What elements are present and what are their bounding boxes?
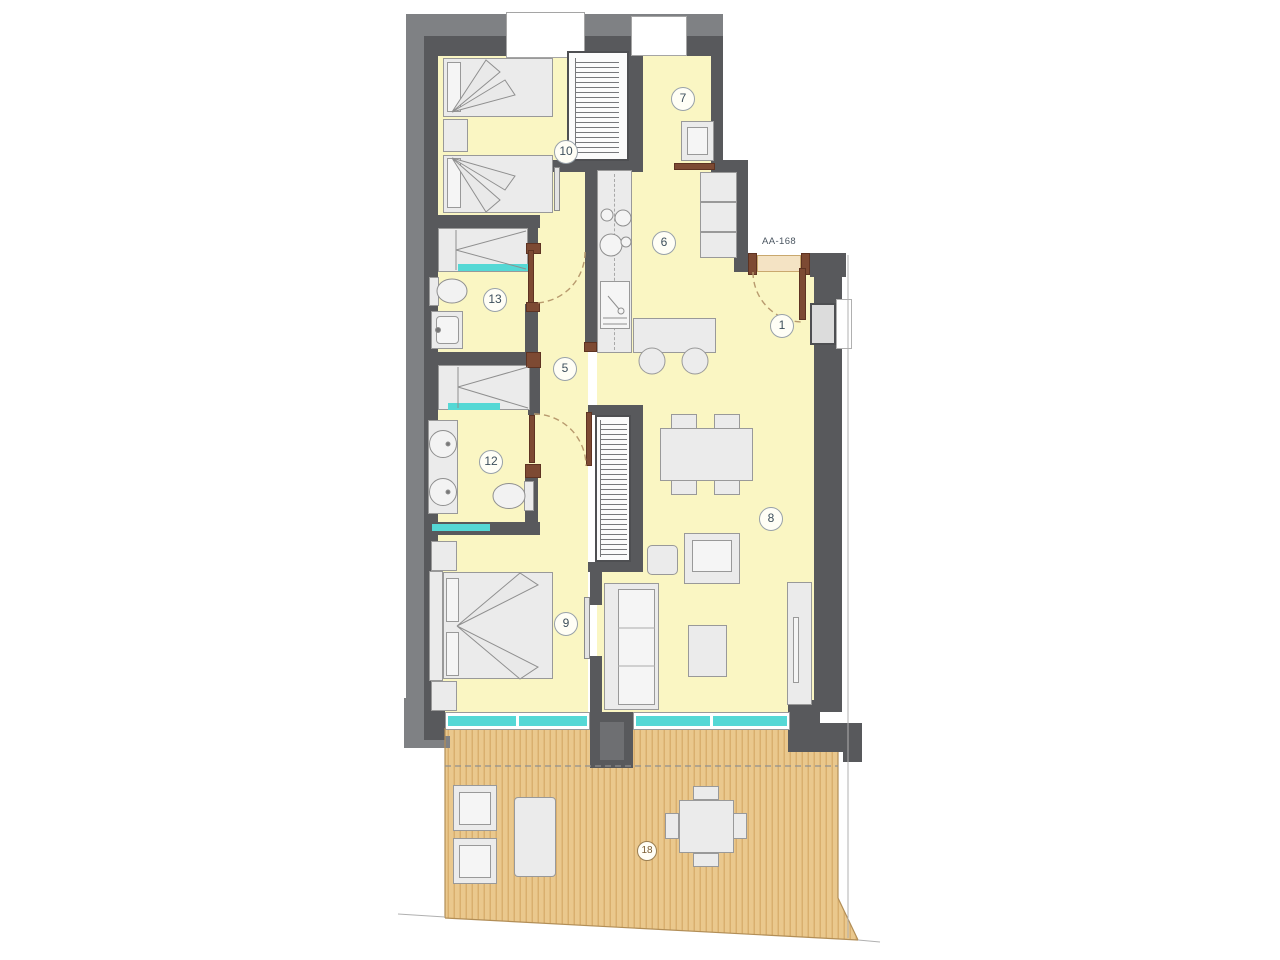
tv-sideboard-slot xyxy=(793,617,799,683)
terrace-lounger xyxy=(514,797,556,877)
entry-door-frame-left xyxy=(748,253,757,275)
room-label-hallway: 5 xyxy=(553,357,577,381)
terrace-chair-south xyxy=(693,853,719,867)
wardrobe-hall-sliding-door xyxy=(586,412,592,466)
double-bed-pillow-1 xyxy=(446,578,459,622)
double-bed-pillow-2 xyxy=(446,632,459,676)
room-label-living-dining: 8 xyxy=(759,507,783,531)
utility-niche xyxy=(836,299,852,349)
bath13-door-leaf xyxy=(528,250,534,306)
entry-door-reference: AA-168 xyxy=(762,236,796,247)
vanity-12 xyxy=(428,420,458,514)
wardrobe-hall-hangers xyxy=(600,420,627,557)
window-bedroom-terrace xyxy=(445,712,590,730)
toilet-12-cistern xyxy=(524,481,534,511)
kitchen-tall-cabinet-1 xyxy=(700,172,737,202)
nightstand-9-bottom xyxy=(431,681,457,711)
dining-chair-bottom-2 xyxy=(714,480,740,495)
nightstand-10 xyxy=(443,119,468,152)
dining-chair-top-2 xyxy=(714,414,740,429)
sofa-cushions xyxy=(618,589,655,705)
terrace-chair-west xyxy=(665,813,679,839)
wall-bath13-bath12 xyxy=(424,352,540,365)
single-bed-1-pillow xyxy=(447,62,461,112)
wall-bed9-living-bottom xyxy=(590,656,602,712)
wall-bed9-living-top xyxy=(590,572,602,605)
room-label-bedroom-twin: 10 xyxy=(554,140,578,164)
bath12-door-hinge-bottom xyxy=(525,464,541,478)
terrace-deck xyxy=(437,728,858,940)
wall-kitchen-west xyxy=(585,160,597,352)
utility-sliding-track xyxy=(674,163,715,170)
terrace-chair-2-seat xyxy=(459,845,491,878)
washing-machine-inner xyxy=(687,127,708,155)
room-label-bathroom-bottom: 12 xyxy=(479,450,503,474)
room-label-kitchen: 6 xyxy=(652,231,676,255)
wall-bottom-right-block xyxy=(788,700,820,752)
terrace-chair-east xyxy=(733,813,747,839)
room-label-terrace: 18 xyxy=(637,841,657,861)
armchair-seat xyxy=(692,540,732,572)
utility-meter-box xyxy=(810,303,836,345)
room-label-bathroom-top: 13 xyxy=(483,288,507,312)
kitchen-tall-cabinet-2 xyxy=(700,202,737,232)
dining-chair-bottom-1 xyxy=(671,480,697,495)
nightstand-9-top xyxy=(431,541,457,571)
wall-closet1-east xyxy=(629,48,643,166)
entry-door-opening xyxy=(757,255,801,272)
kitchen-wall-end xyxy=(584,342,597,352)
dining-table xyxy=(660,428,753,481)
terrace-pillar-inner xyxy=(600,722,624,760)
window-divider xyxy=(710,715,713,727)
washbasin-13-bowl xyxy=(436,316,459,344)
wall-bottom-right-step xyxy=(843,745,862,762)
terrace-chair-1-seat xyxy=(459,792,491,825)
wall-entry-block-right xyxy=(810,253,846,277)
window-living-terrace xyxy=(633,712,790,730)
single-bed-2-pillow xyxy=(447,158,461,208)
bedroom10-sliding-leaf xyxy=(554,167,560,211)
kitchen-tall-cabinet-3 xyxy=(700,232,737,258)
wall-bedroom10-south xyxy=(424,215,540,228)
bath12-door-leaf xyxy=(529,415,535,463)
bath13-door-stop xyxy=(526,302,540,312)
room-label-entrance-hall: 1 xyxy=(770,314,794,338)
room-label-master-bedroom: 9 xyxy=(554,612,578,636)
kitchen-island xyxy=(633,318,716,353)
wardrobe-top-hangers xyxy=(575,58,619,155)
bath12-wall-glazing xyxy=(432,524,490,531)
bed9-headboard xyxy=(429,571,443,681)
kitchen-sink xyxy=(600,281,630,329)
shower-13-screen xyxy=(458,264,528,271)
toilet-13-cistern xyxy=(429,277,439,306)
bath12-door-hinge-top xyxy=(526,352,541,368)
window-top-utility xyxy=(631,16,687,56)
shower-12-screen xyxy=(448,403,500,410)
apartment-floor-plan: 10 7 6 13 5 1 12 8 9 18 AA-168 xyxy=(0,0,1280,960)
room-label-utility-room: 7 xyxy=(671,87,695,111)
bedroom9-sliding-leaf xyxy=(584,597,590,659)
entry-door-leaf xyxy=(799,268,806,320)
wall-kitchen-east xyxy=(736,167,748,268)
window-divider xyxy=(516,715,519,727)
terrace-table xyxy=(679,800,734,853)
side-table-lamp xyxy=(647,545,678,575)
terrace-chair-north xyxy=(693,786,719,800)
outer-band-left xyxy=(406,14,424,744)
wall-closet2-bottom xyxy=(588,562,643,572)
dining-chair-top-1 xyxy=(671,414,697,429)
wall-closet2-east xyxy=(631,405,643,572)
tv-sideboard xyxy=(787,582,812,705)
coffee-table xyxy=(688,625,727,677)
double-bed xyxy=(443,572,553,679)
